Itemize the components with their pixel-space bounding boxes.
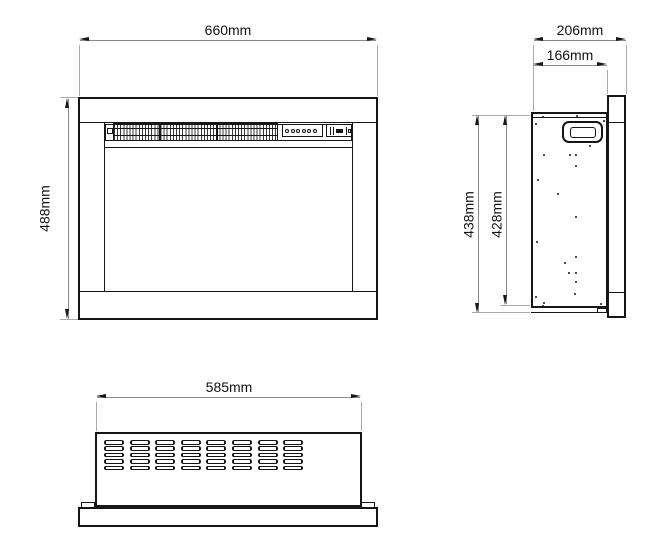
dimension-line-bottom-width [97, 397, 360, 398]
arrowhead [96, 394, 106, 398]
vent-slot [155, 459, 175, 464]
bottom-view: 585mm [0, 0, 650, 545]
vent-slot [155, 466, 175, 471]
vent-slot [258, 459, 278, 464]
vent-slot [283, 440, 303, 445]
vent-slot [232, 459, 252, 464]
vent-slot [206, 466, 226, 471]
vent-slot [104, 466, 124, 471]
vent-slot [232, 453, 252, 458]
vent-slot [155, 446, 175, 451]
vent-slot [232, 446, 252, 451]
vent-slot [283, 466, 303, 471]
dim-label-bottom-width: 585mm [179, 380, 279, 395]
vent-slot [181, 440, 201, 445]
vent-slot [104, 459, 124, 464]
vent-slot [130, 466, 150, 471]
vent-slot [130, 440, 150, 445]
vent-slot [283, 459, 303, 464]
vent-slot [258, 440, 278, 445]
vent-slot [206, 440, 226, 445]
vent-slot [130, 459, 150, 464]
vent-slot [181, 466, 201, 471]
vent-slot [206, 446, 226, 451]
vent-slot [232, 466, 252, 471]
vent-slot [104, 446, 124, 451]
extension-line [361, 402, 362, 431]
vent-slot [283, 453, 303, 458]
vent-slot [232, 440, 252, 445]
vent-slot [258, 446, 278, 451]
vent-slot [258, 453, 278, 458]
vent-slot [181, 453, 201, 458]
drawing-canvas: 660mm 488mm [0, 0, 650, 545]
vent-slot [155, 440, 175, 445]
vent-slot [104, 440, 124, 445]
vent-slot [206, 453, 226, 458]
bottom-base-outline [78, 507, 378, 527]
vent-slot [104, 453, 124, 458]
vent-slot [181, 459, 201, 464]
arrowhead [351, 394, 361, 398]
vent-slot [206, 459, 226, 464]
extension-line [96, 402, 97, 431]
vent-slot [181, 446, 201, 451]
vent-slot [155, 453, 175, 458]
vent-slot [130, 446, 150, 451]
vent-slot [130, 453, 150, 458]
vent-grid [104, 440, 303, 470]
vent-slot [258, 466, 278, 471]
vent-slot [283, 446, 303, 451]
